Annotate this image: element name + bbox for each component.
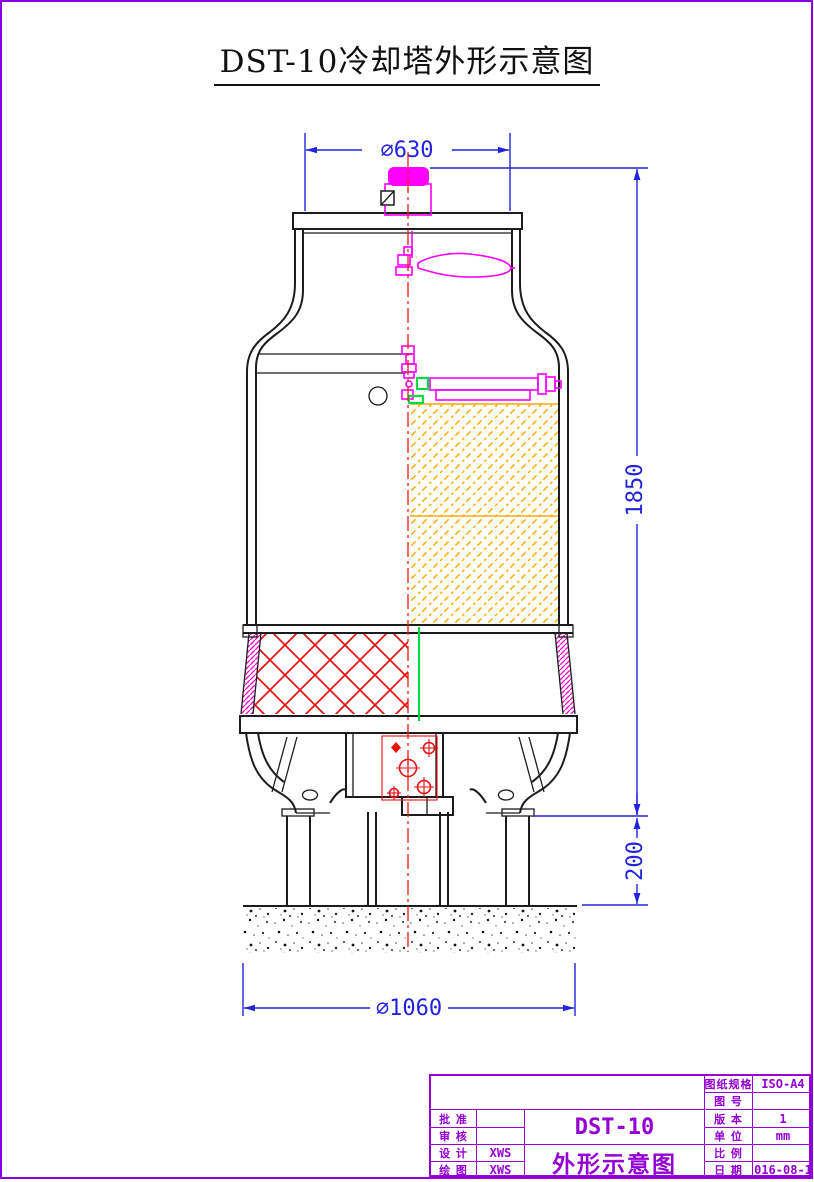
titleblock-label-checked: 审 核: [431, 1128, 477, 1145]
foundation-ground: [243, 906, 577, 953]
titleblock-label-approved: 批 准: [431, 1110, 477, 1128]
fan-blade: [396, 231, 515, 277]
titleblock-value-scale: [753, 1145, 813, 1162]
dim-1060-text: ∅1060: [376, 996, 442, 1021]
dim-base-diameter: ∅1060: [243, 963, 575, 1021]
titleblock-label-designed: 设 计: [431, 1145, 477, 1162]
dim-630-text: ∅630: [381, 138, 434, 163]
dim-200-text: 200: [623, 841, 648, 881]
louver-strip-right: [555, 633, 575, 714]
titleblock-value-date: 2016-08-19: [753, 1162, 813, 1179]
titleblock-value-designed: XWS: [477, 1145, 525, 1162]
water-distributor: [402, 346, 561, 403]
titleblock-label-date: 日 期: [705, 1162, 753, 1179]
inspection-port: [369, 387, 387, 405]
titleblock-value-checked: [477, 1128, 525, 1145]
titleblock-label-drawing-no: 图 号: [705, 1093, 753, 1110]
titleblock-model: DST-10: [525, 1110, 705, 1145]
titleblock-value-version: 1: [753, 1110, 813, 1128]
cooling-tower-drawing: ∅630 1850 200 ∅1060: [0, 0, 814, 1182]
drift-eliminator-hatch: [253, 633, 408, 714]
titleblock-value-drawn: XWS: [477, 1162, 525, 1179]
riser-fitting: [417, 378, 428, 389]
titleblock-label-drawn: 绘 图: [431, 1162, 477, 1179]
fill-pack-hatch: [410, 404, 559, 625]
titleblock-drawing-name: 外形示意图: [525, 1145, 705, 1179]
titleblock-value-paper-spec: ISO-A4: [753, 1076, 813, 1093]
motor-junction-box: [381, 191, 394, 205]
title-block: 图纸规格 图 号 版 本 单 位 比 例 日 期 ISO-A4 1 mm 201…: [429, 1074, 811, 1177]
outlet-connection-detail: [382, 736, 438, 800]
titleblock-label-version: 版 本: [705, 1110, 753, 1128]
titleblock-value-approved: [477, 1110, 525, 1128]
titleblock-value-unit: mm: [753, 1128, 813, 1145]
titleblock-label-scale: 比 例: [705, 1145, 753, 1162]
dim-1850-text: 1850: [623, 464, 648, 517]
titleblock-label-unit: 单 位: [705, 1128, 753, 1145]
titleblock-value-drawing-no: [753, 1093, 813, 1110]
titleblock-label-paper-spec: 图纸规格: [705, 1076, 753, 1093]
titleblock-empty-cell: [431, 1076, 705, 1110]
drawing-page: { "page": { "title": "DST-10冷却塔外形示意图" },…: [0, 0, 814, 1182]
